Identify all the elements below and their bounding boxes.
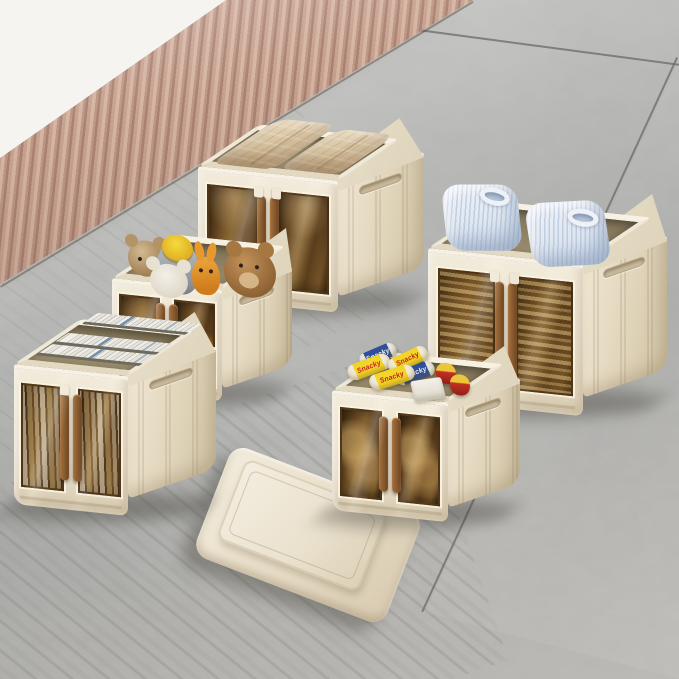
snack-box-white: [410, 377, 446, 402]
crate-front-panel: [332, 390, 448, 522]
glass-glare: [332, 394, 448, 522]
plush-eye: [255, 265, 259, 269]
shirt: [523, 199, 612, 267]
plush-ear: [205, 241, 218, 263]
plush-eye: [209, 269, 213, 273]
plush-ear: [258, 241, 274, 259]
plush-toys: [128, 237, 289, 290]
shirt-collar: [567, 207, 598, 229]
plush-ear: [125, 233, 138, 247]
snack-jar: [450, 373, 470, 396]
plush-eye: [199, 268, 203, 272]
book-row: [81, 313, 202, 335]
yellow-hat: [162, 233, 193, 262]
shirt: [441, 184, 523, 250]
plush-ear: [177, 259, 191, 274]
storage-crate-snacks: Snacky Snacky Snacky Snacky Snacky: [332, 346, 600, 540]
orange-bunny-plush: [192, 255, 220, 296]
plush-ear: [226, 240, 242, 258]
glass-glare: [14, 368, 128, 516]
shirt-collar: [479, 185, 511, 209]
plush-eye: [239, 263, 243, 267]
plush-eye: [138, 257, 142, 261]
storage-crate-books: [14, 312, 296, 534]
product-photo-scene: Snacky Snacky Snacky Snacky Snacky: [0, 0, 679, 679]
plush-muzzle: [239, 271, 259, 289]
snack-brand-label: Snacky: [379, 370, 405, 384]
crate-front-panel: [14, 364, 128, 516]
